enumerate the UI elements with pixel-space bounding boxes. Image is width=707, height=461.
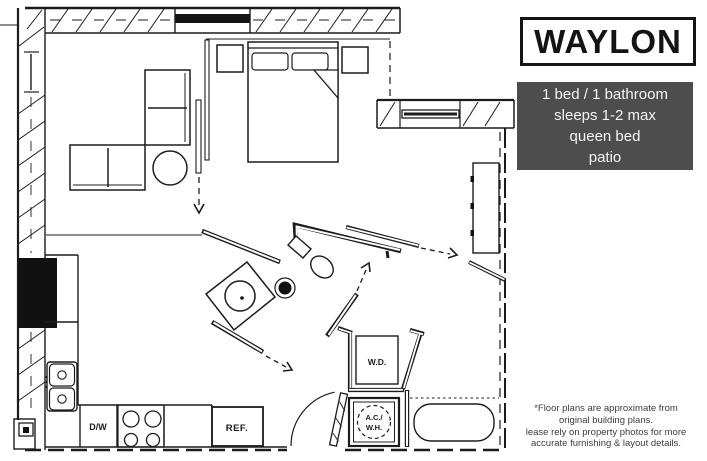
corner-post [14,419,35,449]
window-left [24,52,39,92]
info-sleeps: sleeps 1-2 max [554,105,656,126]
dishwasher-label: D/W [89,422,107,432]
info-bed-type: queen bed [570,126,641,147]
patio-table [471,163,500,253]
info-patio: patio [589,147,622,168]
nightstand-right [342,47,368,73]
disclaimer-text: *Floor plans are approximate from origin… [508,403,704,450]
left-wall [14,8,57,450]
disclaimer-line: *Floor plans are approximate from [508,403,704,415]
bed [206,39,390,162]
coffee-table [153,151,187,185]
bathtub-room [407,390,499,447]
floor-plan-drawing: D/W REF. W.D. A.C./ W.H. [0,0,515,461]
vanity-sink [206,262,275,330]
top-wall [0,8,400,33]
unit-info-box: 1 bed / 1 bathroom sleeps 1-2 max queen … [517,82,693,170]
nightstand-left [217,45,243,72]
washer-dryer-label: W.D. [368,357,386,367]
ac-water-heater-closet [349,398,399,446]
ac-label-line1: A.C./ [365,413,383,422]
kitchen-sink [46,362,78,411]
info-beds-baths: 1 bed / 1 bathroom [542,84,668,105]
disclaimer-line: original building plans. [508,415,704,427]
sheet-fold [314,70,338,98]
window-top [175,8,250,33]
pillow [292,53,328,70]
stove [118,405,164,447]
door-pivot [275,278,295,298]
bathtub [414,404,494,441]
structural-column [18,258,57,328]
disclaimer-line: lease rely on property photos for more [508,427,704,439]
toilet [288,236,338,282]
unit-title-box: WAYLON [520,17,696,66]
right-wall [500,128,505,452]
closet-sliding-doors [196,40,209,173]
arrow-down-icon [194,204,204,213]
pillow [252,53,288,70]
patio-header-wall [377,41,514,128]
arrow-right-icon [448,248,457,258]
ac-label-line2: W.H. [366,423,382,432]
bathroom-sliding-door [346,227,419,246]
refrigerator-label: REF. [226,423,249,434]
entry-door [291,392,347,446]
sofa [70,70,190,190]
floor-plan-page: D/W REF. W.D. A.C./ W.H. WAYLON 1 bed / … [0,0,707,461]
unit-title: WAYLON [534,23,682,61]
window-patio [400,100,460,128]
disclaimer-line: accurate furnishing & layout details. [508,438,704,450]
